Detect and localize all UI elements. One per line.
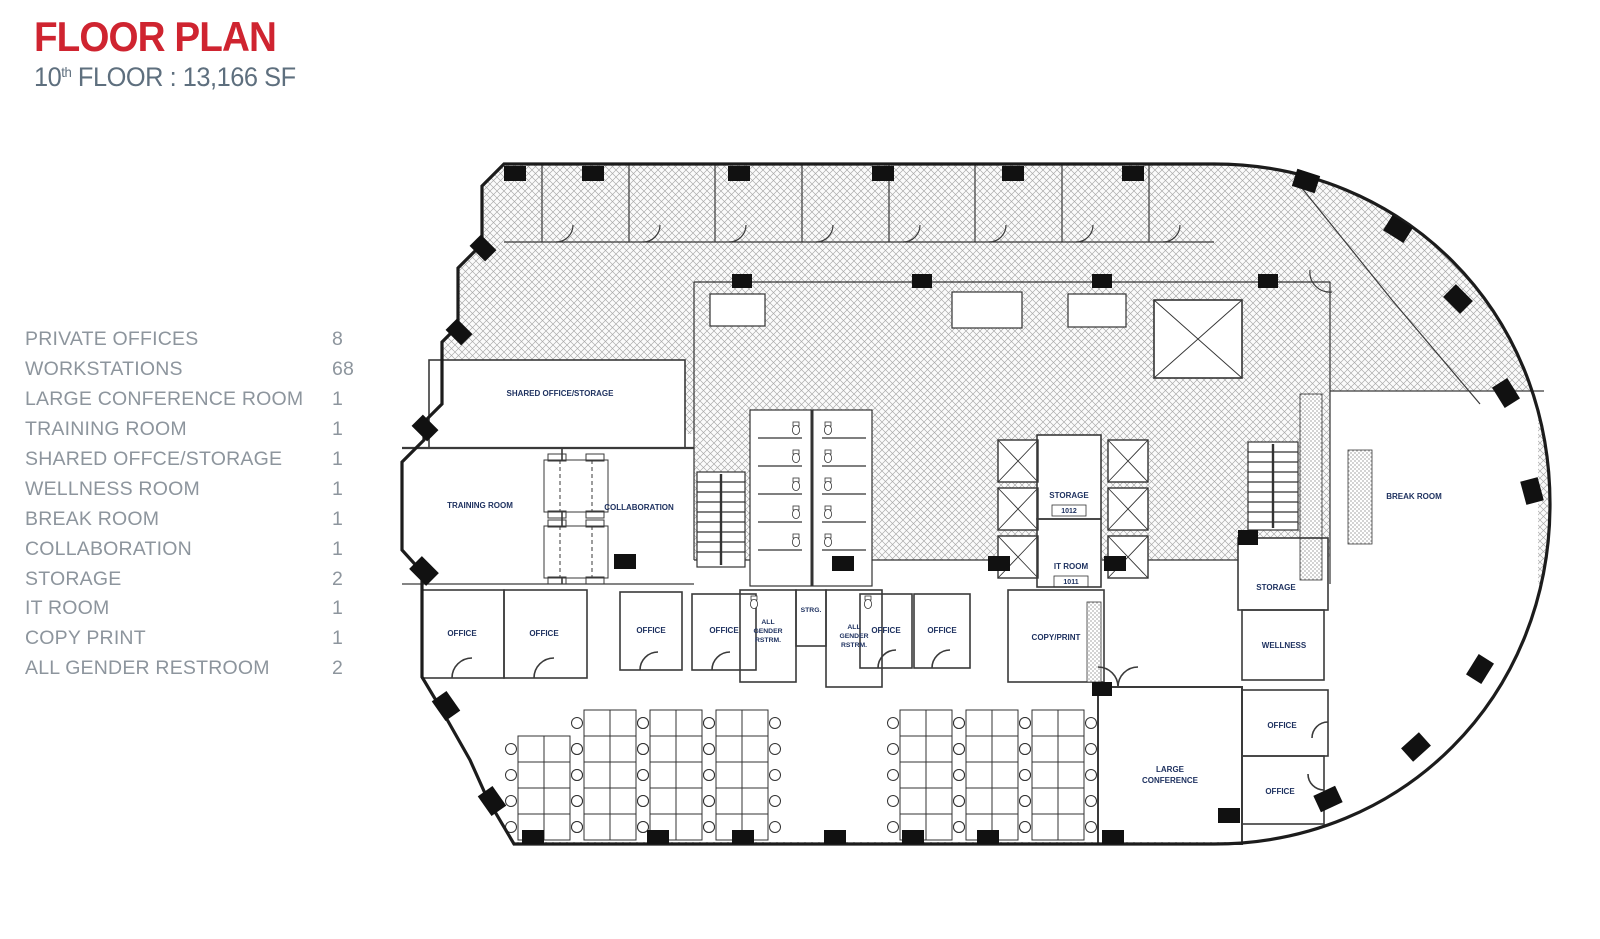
legend-label: TRAINING ROOM <box>25 418 332 441</box>
legend-count: 1 <box>332 627 382 650</box>
legend-row: STORAGE2 <box>25 564 385 594</box>
legend-row: IT ROOM1 <box>25 594 385 624</box>
room-label-office: OFFICE <box>927 626 957 635</box>
legend-label: STORAGE <box>25 568 332 591</box>
legend-label: IT ROOM <box>25 597 332 620</box>
floor-number: 10 <box>34 62 61 92</box>
page-title: FLOOR PLAN <box>34 14 290 60</box>
floor-plan-drawing: SHARED OFFICE/STORAGE TRAINING ROOM COLL… <box>392 142 1562 872</box>
room-label-all-gender-restroom: RSTRM. <box>755 637 781 644</box>
legend-label: BREAK ROOM <box>25 508 332 531</box>
room-label-office: OFFICE <box>636 626 666 635</box>
legend-row: TRAINING ROOM1 <box>25 415 385 445</box>
legend-label: COPY PRINT <box>25 627 332 650</box>
legend-row: PRIVATE OFFICES8 <box>25 325 385 355</box>
room-label-collaboration: COLLABORATION <box>604 503 674 512</box>
legend-row: BREAK ROOM1 <box>25 504 385 534</box>
legend-count: 1 <box>332 478 382 501</box>
room-label-strg: STRG. <box>801 607 822 614</box>
legend-label: ALL GENDER RESTROOM <box>25 657 332 680</box>
legend-count: 2 <box>332 568 382 591</box>
legend-label: SHARED OFFCE/STORAGE <box>25 448 332 471</box>
legend-count: 8 <box>332 328 382 351</box>
room-label-office: OFFICE <box>1267 721 1297 730</box>
room-label-wellness: WELLNESS <box>1262 641 1307 650</box>
legend-count: 68 <box>332 358 382 381</box>
floor-ordinal: th <box>61 64 71 80</box>
legend-row: ALL GENDER RESTROOM2 <box>25 654 385 684</box>
room-label-storage: STORAGE <box>1256 583 1296 592</box>
room-label-all-gender-restroom: ALL <box>847 624 860 631</box>
legend-count: 1 <box>332 597 382 620</box>
stairs <box>1248 442 1298 530</box>
legend-label: WORKSTATIONS <box>25 358 332 381</box>
room-label-office: OFFICE <box>709 626 739 635</box>
legend-row: COPY PRINT1 <box>25 624 385 654</box>
legend-count: 1 <box>332 448 382 471</box>
room-label-all-gender-restroom: ALL <box>761 619 774 626</box>
legend-count: 1 <box>332 418 382 441</box>
floor-suffix: FLOOR : 13,166 SF <box>71 62 295 92</box>
legend-label: WELLNESS ROOM <box>25 478 332 501</box>
legend-count: 1 <box>332 508 382 531</box>
room-label-office: OFFICE <box>447 629 477 638</box>
room-label-break-room: BREAK ROOM <box>1386 492 1442 501</box>
floor-plan-svg: SHARED OFFICE/STORAGE TRAINING ROOM COLL… <box>392 142 1562 872</box>
legend-label: LARGE CONFERENCE ROOM <box>25 388 332 411</box>
header: FLOOR PLAN 10th FLOOR : 13,166 SF <box>34 14 312 93</box>
room-tag-it-room: 1011 <box>1063 579 1078 586</box>
room-label-copy-print: COPY/PRINT <box>1032 633 1081 642</box>
page-subtitle: 10th FLOOR : 13,166 SF <box>34 62 296 93</box>
legend-row: WORKSTATIONS68 <box>25 355 385 385</box>
room-label-training-room: TRAINING ROOM <box>447 501 513 510</box>
room-label-large-conference: CONFERENCE <box>1142 776 1199 785</box>
legend-count: 2 <box>332 657 382 680</box>
legend-row: WELLNESS ROOM1 <box>25 474 385 504</box>
room-label-office: OFFICE <box>871 626 901 635</box>
room-label-all-gender-restroom: RSTRM. <box>841 642 867 649</box>
legend-count: 1 <box>332 388 382 411</box>
room-label-it-room: IT ROOM <box>1054 562 1089 571</box>
room-label-shared-office-storage: SHARED OFFICE/STORAGE <box>507 389 615 398</box>
legend-count: 1 <box>332 538 382 561</box>
room-label-large-conference: LARGE <box>1156 765 1185 774</box>
legend-row: COLLABORATION1 <box>25 534 385 564</box>
room-label-all-gender-restroom: GENDER <box>839 633 868 640</box>
room-legend: PRIVATE OFFICES8 WORKSTATIONS68 LARGE CO… <box>25 325 385 684</box>
legend-label: COLLABORATION <box>25 538 332 561</box>
room-label-office: OFFICE <box>1265 787 1295 796</box>
stairs <box>697 472 745 567</box>
legend-label: PRIVATE OFFICES <box>25 328 332 351</box>
room-label-storage: STORAGE <box>1049 491 1089 500</box>
legend-row: SHARED OFFCE/STORAGE1 <box>25 445 385 475</box>
room-label-all-gender-restroom: GENDER <box>753 628 782 635</box>
floor-plan-page: { "header": { "title": "FLOOR PLAN", "fl… <box>0 0 1600 939</box>
room-label-office: OFFICE <box>529 629 559 638</box>
legend-row: LARGE CONFERENCE ROOM1 <box>25 385 385 415</box>
room-tag-storage: 1012 <box>1061 508 1077 515</box>
